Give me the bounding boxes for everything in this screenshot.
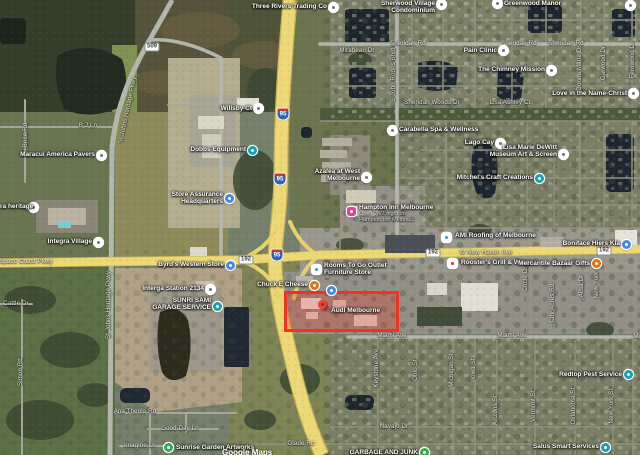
- sunri-sami-garage-service-icon[interactable]: [213, 302, 222, 311]
- poi-hampton-inn-melbourne[interactable]: Hampton Inn MelbourneOpen 24/7 night onH…: [359, 204, 433, 223]
- street-label: Fernwood Dr: [630, 42, 636, 79]
- street-label: Simon Rd: [18, 358, 24, 386]
- street-label: Glade Rd: [288, 441, 315, 447]
- hampton-inn-melbourne-icon[interactable]: [347, 207, 356, 216]
- interga-station-2134-icon[interactable]: [206, 285, 215, 294]
- poi-ami-roofing-of-melbourne[interactable]: AMI Roofing of Melbourne: [455, 232, 536, 239]
- street-label: Alisa Dr: [579, 275, 585, 298]
- street-label: Space Coast Pkwy: [0, 259, 53, 265]
- poi-garbage-and-junk[interactable]: GARBAGE AND JUNK: [350, 449, 418, 455]
- love-in-the-name-christ-icon[interactable]: [629, 89, 638, 98]
- route-shield: 509: [144, 43, 159, 52]
- mercantile-bazaar-gifts-icon[interactable]: [592, 259, 601, 268]
- street-label: Oklahoma St: [571, 388, 577, 425]
- poi-carabella-spa-wellness[interactable]: Carabella Spa & Wellness: [399, 126, 478, 133]
- street-label: B J Ln: [79, 123, 97, 129]
- street-label: Mirabeau Dr: [339, 48, 374, 54]
- street-label: Vermont St: [531, 390, 537, 422]
- street-label: Imagine Ln: [124, 443, 156, 449]
- carabella-spa-wellness-icon[interactable]: [388, 126, 397, 135]
- boniface-hiers-kia-icon[interactable]: [622, 240, 631, 249]
- greenwood-manor-icon[interactable]: [493, 0, 502, 8]
- poi-willsby-ct[interactable]: Willsby Ct: [221, 105, 252, 112]
- poi-interga-station-2134[interactable]: Interga Station 2134: [142, 285, 204, 292]
- dealership-poi-icon[interactable]: [327, 286, 336, 295]
- poi-love-in-the-name-christ[interactable]: Love in the Name-Christ: [552, 90, 627, 97]
- salus-smart-services-icon[interactable]: [601, 443, 610, 452]
- street-label: Miami Ave: [497, 333, 526, 339]
- poi-byrds-western-store[interactable]: Byrd's Western Store: [158, 261, 224, 268]
- street-label: Arizona St: [493, 395, 499, 425]
- poi-boniface-hiers-kia[interactable]: Boniface Hiers Kia: [563, 240, 620, 247]
- google-maps-watermark: Google Maps: [222, 448, 272, 455]
- street-label: S John Rodes Blvd: [391, 48, 397, 102]
- integra-village-icon[interactable]: [94, 238, 103, 247]
- roosters-grill-wings-icon[interactable]: [448, 259, 457, 268]
- street-label: New York St: [594, 264, 600, 299]
- interstate-shield: 95: [272, 250, 283, 261]
- ami-roofing-of-melbourne-icon[interactable]: [442, 233, 451, 242]
- street-label: Good Day Ln: [161, 426, 199, 432]
- street-label: City Acres Rd: [550, 284, 556, 323]
- mitchels-craft-creations-icon[interactable]: [535, 174, 544, 183]
- maracui-america-pavers-icon[interactable]: [97, 151, 106, 160]
- poi-greenwood-manor[interactable]: Greenwood Manor: [504, 0, 561, 7]
- store-assurance-headquarters-icon[interactable]: [225, 194, 234, 203]
- poi-mitchels-craft-creations[interactable]: Mitchel's Craft Creations: [457, 174, 533, 181]
- chuck-e-cheese-icon[interactable]: [310, 281, 319, 290]
- street-label: Miami Ave: [633, 334, 640, 340]
- poi-chuck-e-cheese[interactable]: Chuck E Cheese: [257, 281, 308, 288]
- street-label: Cattle Dr: [3, 301, 28, 307]
- dobbs-equipment-icon[interactable]: [248, 146, 257, 155]
- poi-salus-smart-services[interactable]: Salus Smart Services: [533, 443, 599, 450]
- street-label: New York St: [609, 389, 615, 424]
- willsby-ct-icon[interactable]: [254, 104, 263, 113]
- street-label: Navajo Dr: [380, 424, 408, 430]
- street-label: Sheridan Woods Dr: [404, 100, 460, 106]
- poi-northeast-icon[interactable]: [626, 1, 635, 10]
- street-label: Lisa Ashley Ct: [490, 100, 531, 106]
- poi-pain-clinic[interactable]: Pain Clinic: [464, 47, 497, 54]
- interstate-shield: 95: [275, 174, 286, 185]
- three-rivers-trading-co-icon[interactable]: [329, 3, 338, 12]
- pain-clinic-icon[interactable]: [499, 46, 508, 55]
- route-shield: 192: [425, 249, 440, 258]
- poi-three-rivers-trading-co[interactable]: Three Rivers Trading Co: [252, 3, 327, 10]
- street-label: Miami Ave: [377, 333, 406, 339]
- sherwood-village-condominium-icon[interactable]: [437, 0, 446, 9]
- poi-integra-village[interactable]: Integra Village: [48, 238, 92, 245]
- the-chimney-mission-icon[interactable]: [547, 66, 556, 75]
- street-label: Iowa St: [471, 358, 477, 379]
- garbage-and-junk-icon[interactable]: [420, 448, 429, 455]
- street-label: Sheridan Rd: [390, 41, 426, 47]
- azalea-at-west-melbourne-icon[interactable]: [362, 173, 371, 182]
- street-label: Ohio St: [413, 359, 419, 380]
- poi-sherwood-village-condominium[interactable]: Sherwood VillageCondominium: [381, 0, 435, 14]
- poi-the-chimney-mission[interactable]: The Chimney Mission: [478, 66, 545, 73]
- street-label: St Johns Heritage Pkwy: [106, 271, 112, 339]
- interstate-shield: 95: [278, 109, 289, 120]
- street-label: Keystone Ave: [374, 349, 380, 388]
- street-label: Brice Rd: [23, 123, 29, 148]
- poi-sunri-sami-garage-service[interactable]: SUNRI SAMIGARAGE SERVICE: [152, 297, 211, 311]
- dewitt-museum-icon[interactable]: [559, 150, 568, 159]
- street-label: Circle Dr: [523, 266, 529, 291]
- route-shield: 192: [238, 256, 253, 265]
- poi-dobbs-equipment[interactable]: Dobbs Equipment: [190, 146, 246, 153]
- poi-ra-heritage[interactable]: ra heritage: [0, 203, 33, 210]
- poi-dewitt-museum[interactable]: Lisa Marie DeWittMuseum Art & Screen: [490, 144, 557, 158]
- poi-azalea-at-west-melbourne[interactable]: Azalea at WestMelbourne: [315, 168, 360, 182]
- street-label: Ana Theola Rd: [114, 409, 157, 415]
- poi-rooms-to-go-outlet[interactable]: Rooms To Go OutletFurniture Store: [324, 262, 387, 276]
- street-label: W New Haven Ave: [460, 250, 513, 256]
- redtop-pest-service-icon[interactable]: [624, 370, 633, 379]
- sunrise-garden-artworks-icon[interactable]: [164, 443, 173, 452]
- poi-maracui-america-pavers[interactable]: Maracui America Pavers: [20, 151, 95, 158]
- poi-store-assurance-headquarters[interactable]: Store AssuranceHeadquarters: [172, 191, 223, 205]
- poi-audi-melbourne[interactable]: Audi Melbourne: [331, 307, 380, 314]
- street-label: Garwood Dr: [601, 46, 607, 80]
- route-shield: 192: [596, 247, 611, 256]
- street-label: Donna Marie Dr: [577, 45, 583, 90]
- street-label: Sheridan Rd: [501, 41, 537, 47]
- poi-redtop-pest-service[interactable]: Redtop Pest Service: [559, 371, 622, 378]
- rooms-to-go-outlet-icon[interactable]: [312, 265, 321, 274]
- map-canvas[interactable]: Google Maps Sheridan RdSheridan RdSherid…: [0, 0, 640, 455]
- byrds-western-store-icon[interactable]: [226, 261, 235, 270]
- poi-mercantile-bazaar-gifts[interactable]: Mercantile Bazaar Gifts: [518, 260, 590, 267]
- street-label: Michigan St: [449, 353, 455, 387]
